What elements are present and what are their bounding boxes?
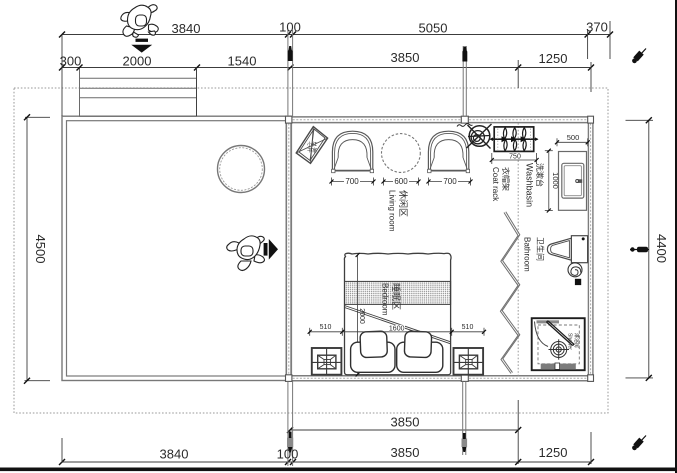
svg-text:1540: 1540 [228, 54, 257, 69]
svg-text:510: 510 [462, 324, 474, 331]
svg-text:3850: 3850 [391, 445, 420, 460]
svg-text:510: 510 [320, 324, 332, 331]
svg-text:500: 500 [567, 133, 580, 142]
svg-text:100: 100 [277, 447, 299, 462]
svg-text:750: 750 [509, 153, 521, 160]
svg-text:700: 700 [443, 177, 457, 186]
svg-text:2000: 2000 [358, 308, 365, 324]
svg-text:Washbasin: Washbasin [525, 163, 535, 207]
svg-text:4400: 4400 [654, 234, 669, 263]
svg-text:休闲区: 休闲区 [398, 190, 409, 217]
svg-text:2000: 2000 [123, 54, 152, 69]
svg-text:小红: 小红 [307, 141, 317, 148]
svg-text:3850: 3850 [391, 50, 420, 65]
svg-text:Shower: Shower [567, 333, 573, 350]
svg-text:洗漱台: 洗漱台 [535, 163, 545, 187]
svg-text:3850: 3850 [391, 415, 420, 430]
svg-text:衣帽架: 衣帽架 [501, 167, 511, 191]
svg-text:3840: 3840 [172, 21, 201, 36]
svg-text:3840: 3840 [160, 447, 189, 462]
svg-text:睡眠区: 睡眠区 [391, 283, 402, 310]
svg-text:Living room: Living room [388, 190, 397, 232]
svg-text:700: 700 [345, 177, 359, 186]
svg-text:Bathroom: Bathroom [523, 237, 532, 272]
svg-text:1000: 1000 [551, 172, 560, 189]
svg-text:书家: 书家 [307, 147, 317, 154]
svg-text:卫生间: 卫生间 [536, 237, 546, 261]
svg-text:Coat rack: Coat rack [491, 167, 500, 202]
svg-text:1600: 1600 [389, 326, 405, 333]
svg-text:600: 600 [394, 177, 408, 186]
svg-text:100: 100 [279, 20, 301, 35]
svg-text:370: 370 [586, 20, 608, 35]
svg-text:4500: 4500 [33, 235, 48, 264]
svg-text:淋浴房: 淋浴房 [573, 333, 580, 348]
svg-text:1250: 1250 [539, 51, 568, 66]
svg-text:300: 300 [60, 54, 82, 69]
svg-text:1250: 1250 [539, 445, 568, 460]
svg-text:Bedroom: Bedroom [381, 283, 390, 316]
svg-text:5050: 5050 [419, 21, 448, 36]
